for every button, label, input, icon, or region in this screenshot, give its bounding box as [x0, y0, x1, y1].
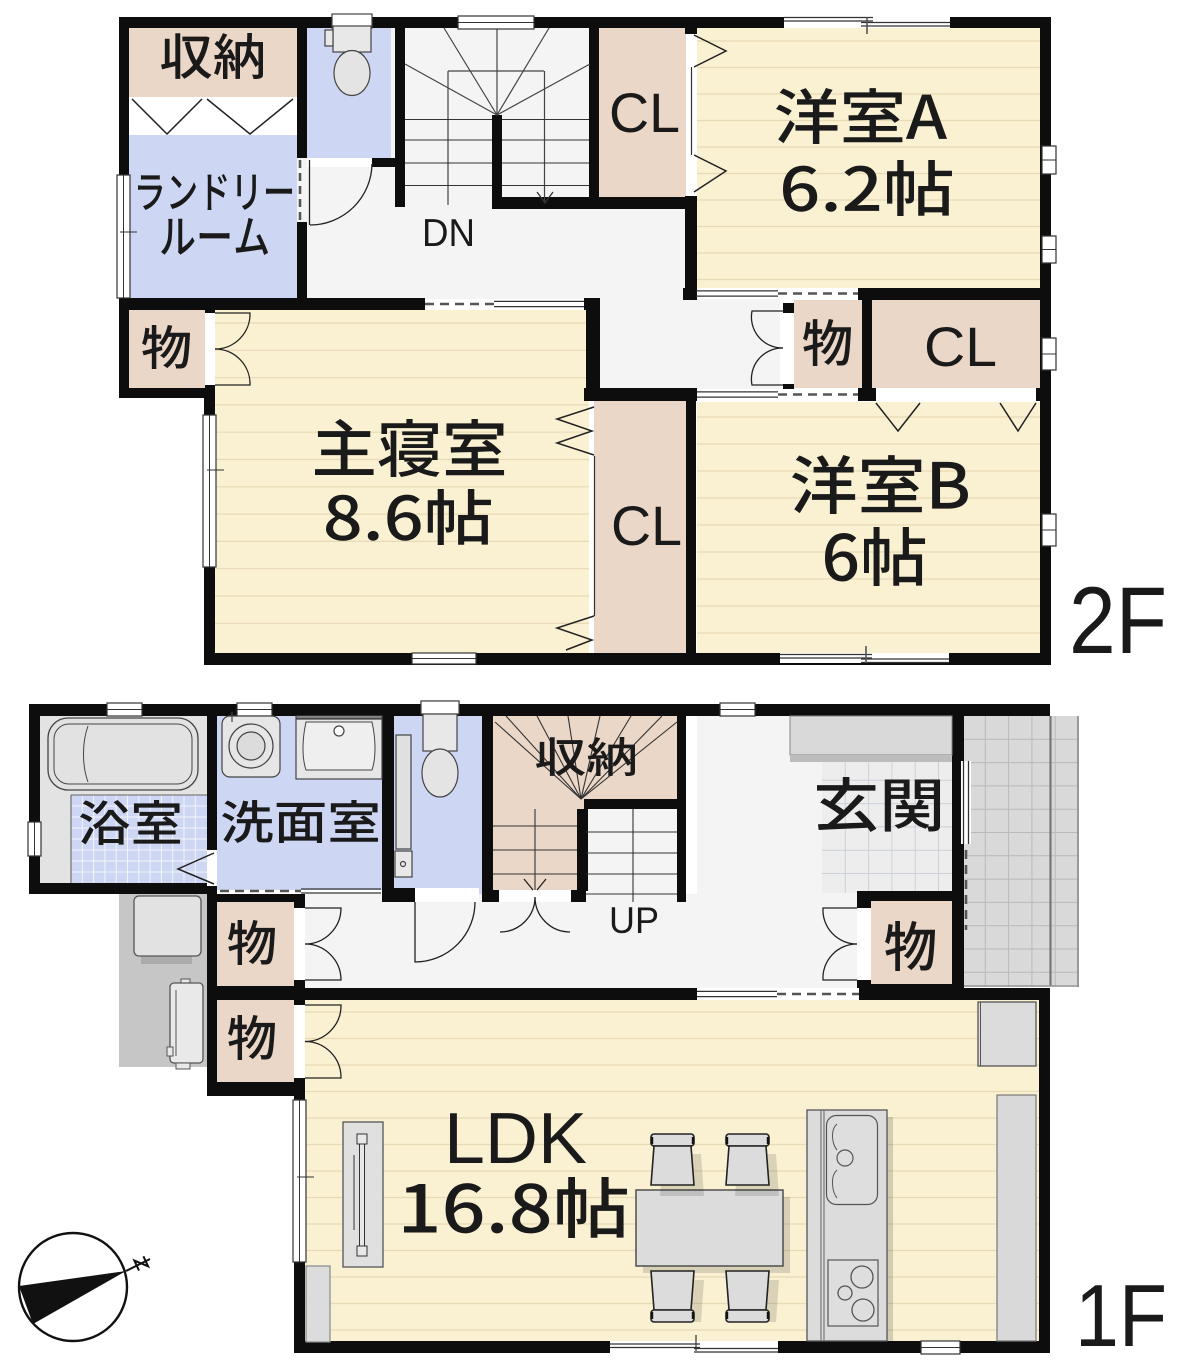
svg-text:2F: 2F	[1069, 568, 1167, 674]
svg-text:DN: DN	[422, 212, 475, 255]
svg-text:CL: CL	[611, 494, 682, 557]
svg-text:CL: CL	[924, 315, 997, 378]
svg-text:LDK: LDK	[444, 1099, 587, 1179]
svg-text:CL: CL	[609, 81, 680, 144]
svg-text:1F: 1F	[1075, 1266, 1167, 1365]
svg-text:UP: UP	[609, 900, 659, 941]
